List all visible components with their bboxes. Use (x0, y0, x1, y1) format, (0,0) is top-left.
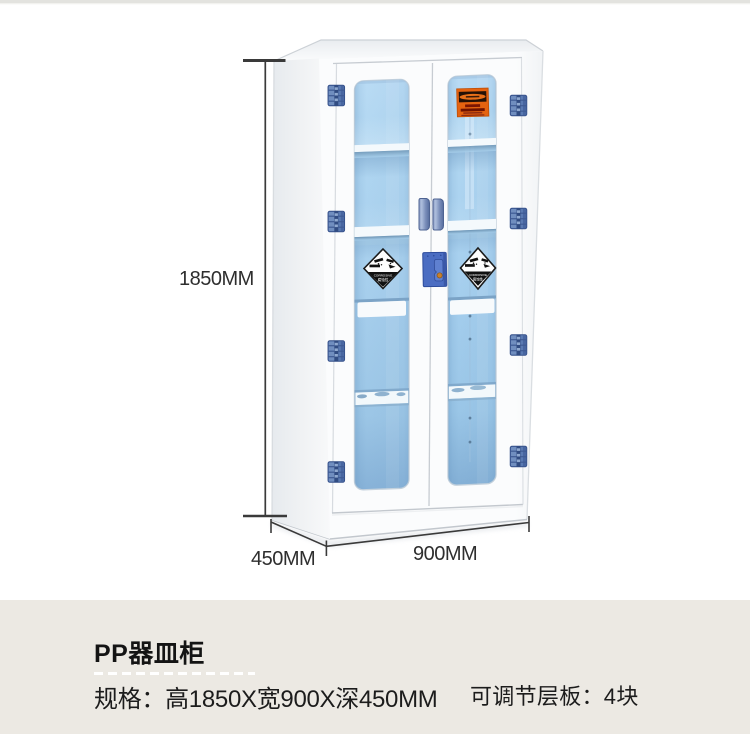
svg-text:腐蚀性: 腐蚀性 (378, 277, 389, 282)
svg-text:CORROSIVE: CORROSIVE (469, 273, 487, 277)
svg-text:腐蚀性: 腐蚀性 (473, 277, 484, 282)
svg-text:CORROSIVE: CORROSIVE (374, 274, 393, 278)
